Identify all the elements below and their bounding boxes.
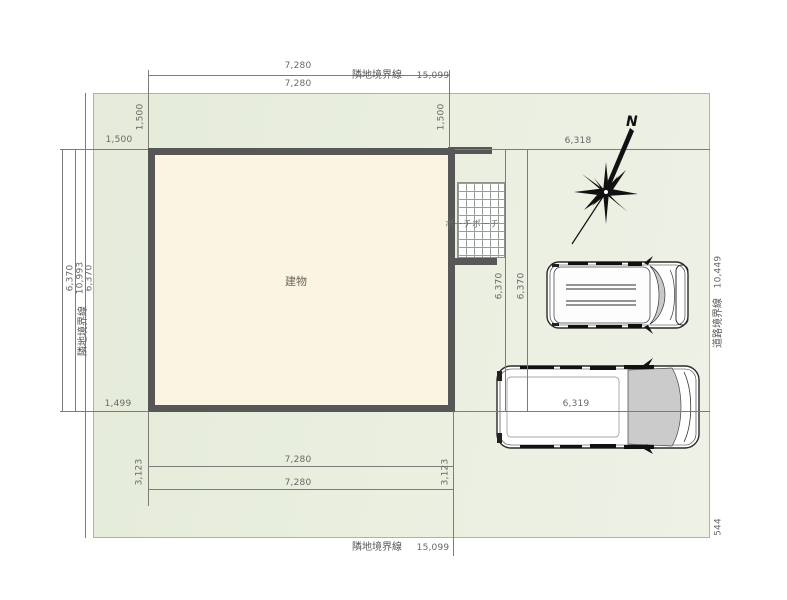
ext-line-bottom-left <box>148 411 149 506</box>
ext-line-top-right <box>449 70 450 148</box>
north-arrow-icon: N <box>556 102 671 252</box>
dim-label-setback-top-right: 1,500 <box>438 104 447 131</box>
ext-line-left-top <box>60 149 148 150</box>
dim-label-bottom-width-2: 7,280 <box>258 479 338 488</box>
north-label: N <box>626 114 638 130</box>
boundary-label-top-length: 15,099 <box>413 72 453 81</box>
ext-line-top-left <box>148 70 149 148</box>
dim-label-offset-bottom-right: 3,123 <box>442 459 451 486</box>
dim-line-bottom-width-2 <box>148 489 453 490</box>
boundary-label-right-extra: 544 <box>715 518 724 536</box>
vehicle-minivan-icon <box>544 255 694 337</box>
dim-label-offset-bottom-left: 3,123 <box>136 459 145 486</box>
dim-line-bottom-width-1 <box>148 466 453 467</box>
dim-line-left-depth-a <box>62 149 63 412</box>
dim-label-depth-left-1: 6,370 <box>67 265 76 292</box>
ext-line-left-bottom <box>60 411 148 412</box>
porch-wall-bottom <box>448 258 497 265</box>
porch-label: ポーチポーチ <box>445 221 499 230</box>
dim-label-top-width-1: 7,280 <box>258 62 338 71</box>
dim-label-bottom-width-1: 7,280 <box>258 456 338 465</box>
dim-line-right-depth-b <box>527 149 528 412</box>
dim-label-setback-left-bottom: 1,499 <box>96 400 140 409</box>
dim-label-top-width-2: 7,280 <box>258 80 338 89</box>
dim-line-parking-bottom <box>455 411 710 412</box>
boundary-label-bottom-name: 隣地境界線 <box>352 543 402 553</box>
dim-label-depth-right-1: 6,370 <box>496 273 505 300</box>
dim-line-right-depth-a <box>505 149 506 412</box>
boundary-label-right-name: 道路境界線 <box>714 298 724 348</box>
dim-label-setback-top-left: 1,500 <box>137 104 146 131</box>
site-plan-canvas: 建物 <box>0 0 787 600</box>
boundary-label-bottom-length: 15,099 <box>413 544 453 553</box>
dim-label-depth-right-2: 6,370 <box>518 273 527 300</box>
ext-line-bottom-right <box>453 411 454 556</box>
boundary-label-right-length: 10,449 <box>715 256 724 289</box>
building-label: 建物 <box>285 276 307 287</box>
dim-label-parking-bottom: 6,319 <box>546 400 606 409</box>
dim-label-setback-left-top: 1,500 <box>97 136 141 145</box>
boundary-label-top-name: 隣地境界線 <box>352 71 402 81</box>
boundary-label-left-name: 隣地境界線 <box>79 306 89 356</box>
dim-label-depth-left-2: 6,370 <box>86 265 95 292</box>
dim-line-top-width <box>148 75 450 76</box>
